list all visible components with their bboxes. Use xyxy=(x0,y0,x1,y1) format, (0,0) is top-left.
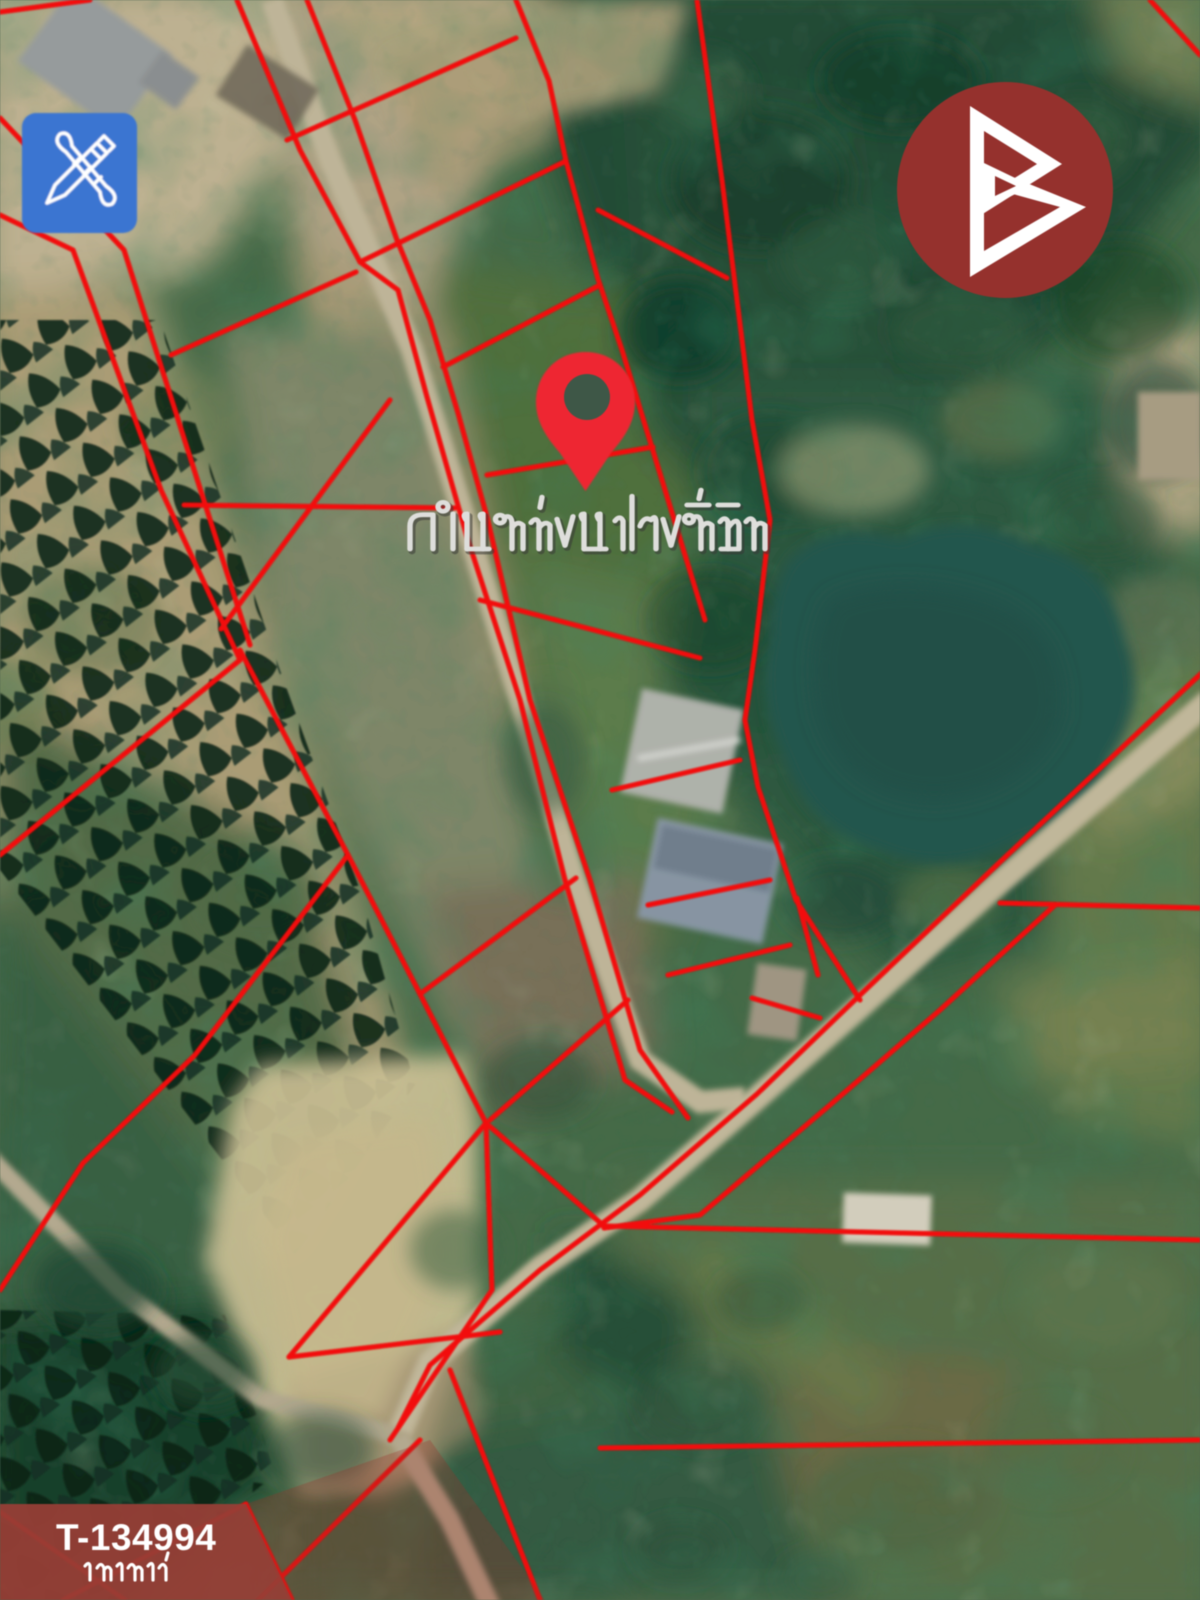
svg-text:T-134994: T-134994 xyxy=(56,1517,216,1558)
